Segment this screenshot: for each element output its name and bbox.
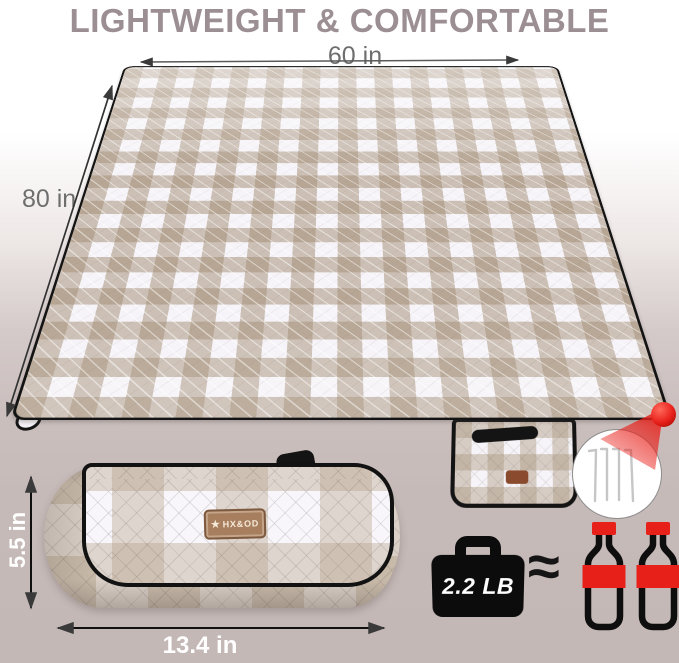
roll-height-label: 5.5 in	[5, 500, 31, 580]
brand-text: HX&OD	[222, 518, 259, 529]
bottle-icon	[635, 521, 679, 631]
weight-value: 2.2 LB	[442, 573, 515, 600]
approx-symbol: ≈	[528, 538, 560, 596]
picnic-blanket	[10, 74, 666, 420]
bottle-icon	[581, 521, 627, 631]
rolled-blanket: ★ HX&OD	[44, 465, 400, 608]
page-title: LIGHTWEIGHT & COMFORTABLE	[0, 2, 679, 40]
star-icon: ★	[211, 519, 221, 530]
pocket-handle	[471, 426, 538, 444]
pocket-label	[506, 470, 529, 483]
roll-width-label: 13.4 in	[150, 632, 250, 660]
weight-icon: 2.2 LB	[431, 555, 525, 617]
brand-label: ★ HX&OD	[204, 508, 267, 540]
corner-anchor-dot	[651, 402, 676, 427]
blanket-surface	[10, 66, 672, 420]
product-infographic: LIGHTWEIGHT & COMFORTABLE	[0, 0, 679, 663]
blanket-pocket-flap	[450, 418, 578, 508]
